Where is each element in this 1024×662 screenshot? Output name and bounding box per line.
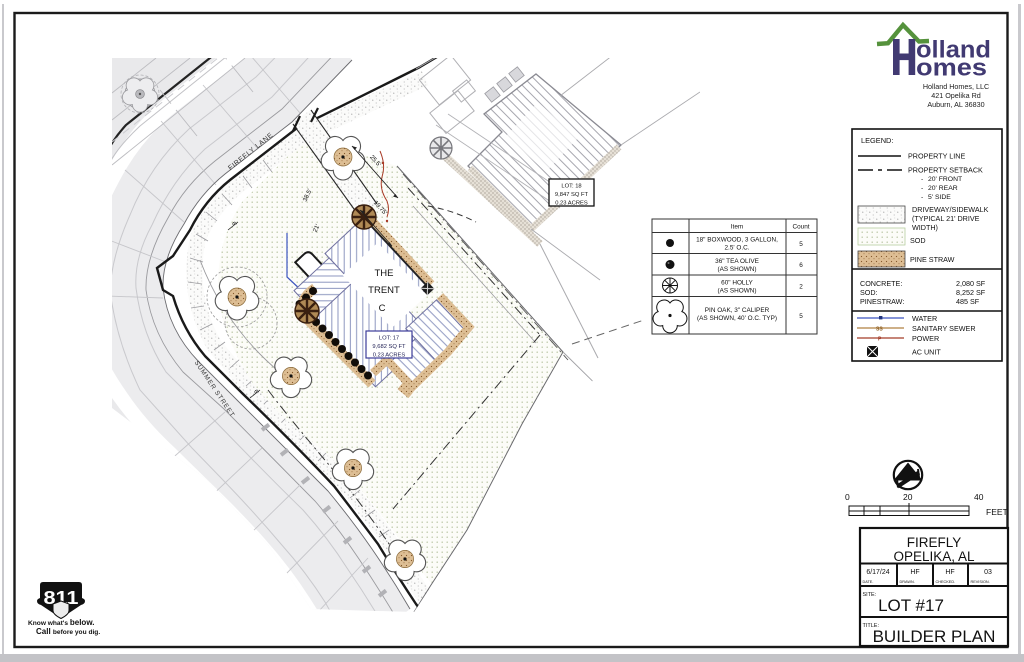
svg-text:SANITARY SEWER: SANITARY SEWER: [912, 324, 976, 333]
svg-text:(TYPICAL 21' DRIVE: (TYPICAL 21' DRIVE: [912, 214, 980, 223]
svg-text:2: 2: [799, 284, 803, 291]
svg-text:omes: omes: [916, 55, 987, 82]
svg-text:0.23 ACRES: 0.23 ACRES: [373, 353, 406, 359]
svg-text:(AS SHOWN, 40' O.C. TYP): (AS SHOWN, 40' O.C. TYP): [697, 315, 777, 322]
svg-text:40: 40: [974, 492, 984, 502]
svg-text:SITE:: SITE:: [863, 592, 877, 598]
svg-text:5: 5: [799, 313, 803, 320]
svg-text:20' REAR: 20' REAR: [928, 185, 958, 192]
svg-text:18" BOXWOOD, 3 GALLON,: 18" BOXWOOD, 3 GALLON,: [696, 237, 778, 244]
svg-text:-: -: [921, 176, 923, 183]
svg-text:Know what's below.: Know what's below.: [28, 618, 94, 627]
svg-text:Holland Homes, LLC: Holland Homes, LLC: [923, 82, 989, 91]
svg-text:POWER: POWER: [912, 334, 939, 343]
svg-text:9,847 SQ FT: 9,847 SQ FT: [555, 192, 589, 198]
svg-text:421 Opelika Rd: 421 Opelika Rd: [931, 91, 981, 100]
svg-text:THE: THE: [375, 268, 394, 279]
svg-text:20' FRONT: 20' FRONT: [928, 176, 962, 183]
svg-text:6/17/24: 6/17/24: [866, 569, 889, 576]
svg-text:LOT: 17: LOT: 17: [379, 336, 399, 342]
svg-text:60" HOLLY: 60" HOLLY: [721, 280, 753, 287]
svg-text:Auburn, AL 36830: Auburn, AL 36830: [927, 100, 984, 109]
svg-text:Item: Item: [731, 224, 743, 231]
svg-text:REVISION.: REVISION.: [971, 580, 990, 584]
svg-text:LEGEND:: LEGEND:: [861, 136, 893, 145]
svg-text:0.23 ACRES: 0.23 ACRES: [555, 201, 588, 207]
svg-text:AC UNIT: AC UNIT: [912, 348, 941, 357]
svg-text:C: C: [379, 303, 386, 314]
svg-text:-: -: [921, 185, 923, 192]
svg-text:SOD: SOD: [910, 236, 926, 245]
svg-text:BUILDER PLAN: BUILDER PLAN: [873, 627, 996, 646]
svg-text:-: -: [921, 194, 923, 201]
svg-text:LOT: 18: LOT: 18: [561, 184, 581, 190]
svg-text:9,682 SQ FT: 9,682 SQ FT: [372, 344, 406, 350]
svg-text:PROPERTY SETBACK: PROPERTY SETBACK: [908, 166, 983, 175]
svg-text:PINESTRAW:: PINESTRAW:: [860, 297, 904, 306]
svg-text:WIDTH): WIDTH): [912, 223, 938, 232]
svg-text:SOD:: SOD:: [860, 288, 878, 297]
svg-text:36" TEA OLIVE: 36" TEA OLIVE: [715, 258, 759, 265]
svg-text:485 SF: 485 SF: [956, 297, 980, 306]
svg-text:PROPERTY LINE: PROPERTY LINE: [908, 152, 965, 161]
svg-text:20: 20: [903, 492, 913, 502]
svg-text:(AS SHOWN): (AS SHOWN): [717, 288, 756, 295]
svg-text:(AS SHOWN): (AS SHOWN): [717, 266, 756, 273]
svg-text:DATE.: DATE.: [863, 580, 874, 584]
svg-text:5: 5: [799, 241, 803, 248]
svg-text:PIN OAK, 3" CALIPER: PIN OAK, 3" CALIPER: [705, 307, 770, 314]
svg-text:2.5' O.C.: 2.5' O.C.: [724, 245, 749, 252]
svg-text:DRAWN.: DRAWN.: [900, 580, 915, 584]
svg-text:5' SIDE: 5' SIDE: [928, 194, 951, 201]
svg-text:Count: Count: [792, 224, 809, 231]
svg-text:6: 6: [799, 262, 803, 269]
svg-text:HF: HF: [910, 569, 919, 576]
svg-text:2,080 SF: 2,080 SF: [956, 279, 986, 288]
svg-text:FEET: FEET: [986, 507, 1008, 517]
svg-text:DRIVEWAY/SIDEWALK: DRIVEWAY/SIDEWALK: [912, 205, 989, 214]
svg-text:CONCRETE:: CONCRETE:: [860, 279, 902, 288]
svg-text:03: 03: [984, 569, 992, 576]
svg-text:CHECKED.: CHECKED.: [936, 580, 956, 584]
svg-text:TRENT: TRENT: [368, 285, 400, 296]
svg-text:FIREFLY: FIREFLY: [907, 535, 962, 550]
svg-text:8,252 SF: 8,252 SF: [956, 288, 986, 297]
svg-text:0: 0: [845, 492, 850, 502]
svg-text:Call before you dig.: Call before you dig.: [36, 627, 100, 636]
svg-text:WATER: WATER: [912, 314, 937, 323]
svg-text:OPELIKA, AL: OPELIKA, AL: [893, 549, 975, 564]
svg-text:SS: SS: [876, 327, 883, 333]
svg-text:HF: HF: [945, 569, 954, 576]
svg-text:LOT #17: LOT #17: [878, 596, 944, 615]
svg-text:PINE STRAW: PINE STRAW: [910, 255, 955, 264]
